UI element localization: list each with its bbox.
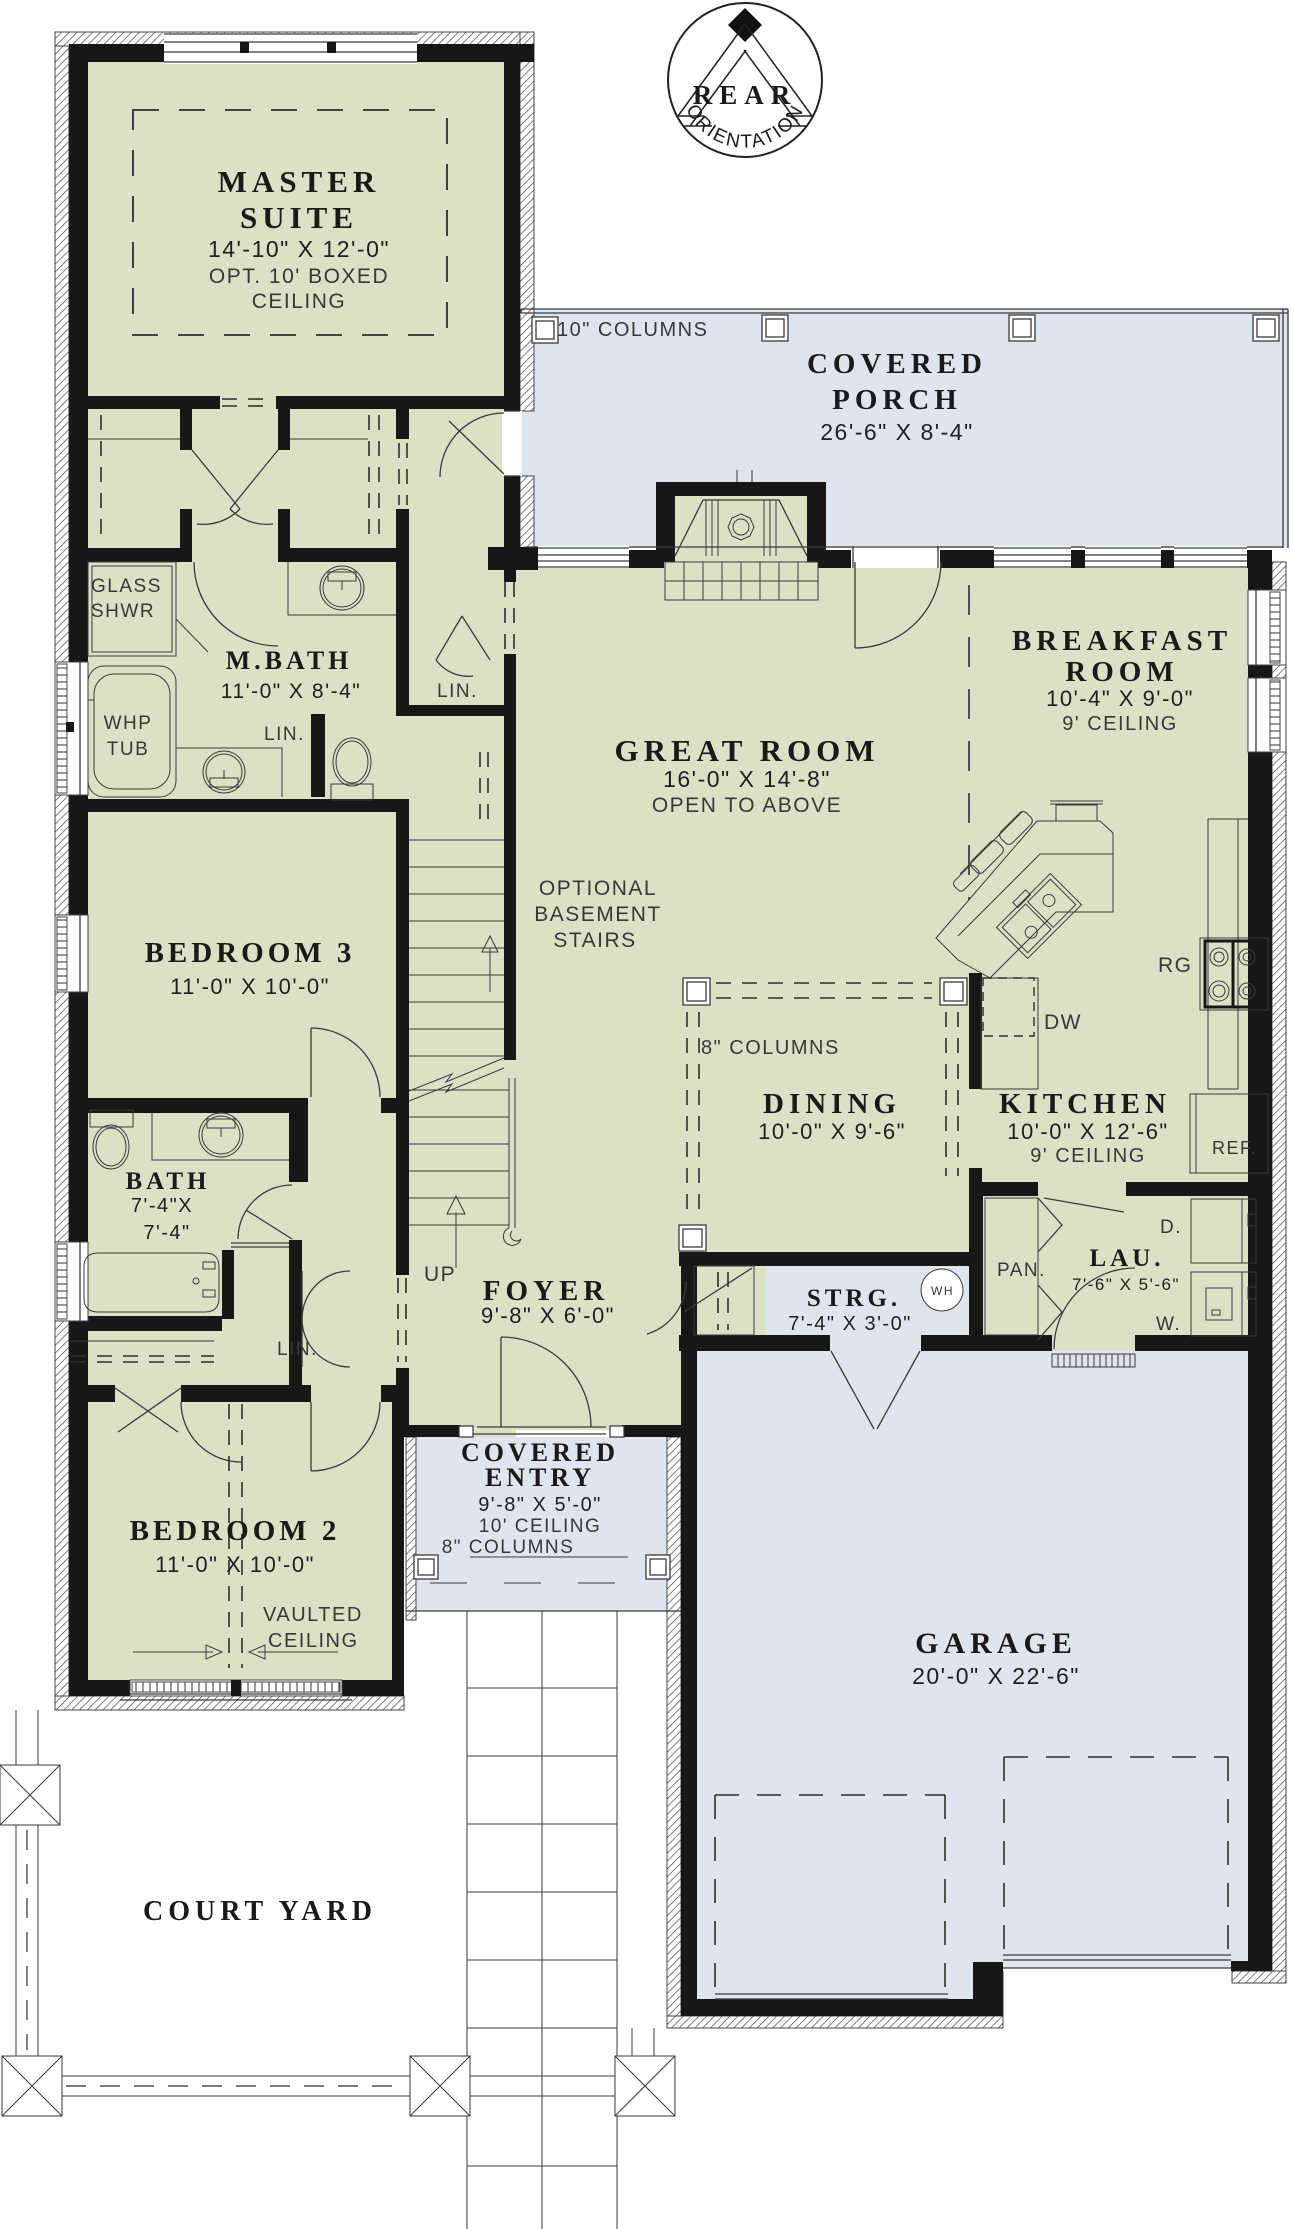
svg-text:LIN.: LIN. (437, 681, 478, 702)
svg-text:DINING: DINING (763, 1088, 901, 1120)
svg-text:11'-0" X 8'-4": 11'-0" X 8'-4" (221, 680, 361, 703)
svg-text:10' CEILING: 10' CEILING (479, 1516, 602, 1537)
svg-text:9' CEILING: 9' CEILING (1030, 1145, 1146, 1167)
svg-text:OPTIONAL: OPTIONAL (539, 877, 657, 900)
svg-text:KITCHEN: KITCHEN (999, 1088, 1171, 1120)
svg-text:W.: W. (1156, 1314, 1181, 1335)
svg-text:WH: WH (931, 1284, 954, 1298)
svg-text:9' CEILING: 9' CEILING (1062, 713, 1178, 735)
svg-text:16'-0" X 14'-8": 16'-0" X 14'-8" (663, 766, 831, 792)
svg-text:ENTRY: ENTRY (485, 1463, 595, 1492)
svg-text:LAU.: LAU. (1089, 1245, 1164, 1272)
svg-text:ROOM: ROOM (1065, 656, 1178, 688)
svg-text:STAIRS: STAIRS (553, 929, 636, 952)
svg-text:7'-6" X 5'-6": 7'-6" X 5'-6" (1072, 1275, 1180, 1294)
svg-text:PAN.: PAN. (997, 1260, 1046, 1281)
svg-text:9'-8" X 6'-0": 9'-8" X 6'-0" (481, 1303, 615, 1328)
svg-text:10'-0" X 9'-6": 10'-0" X 9'-6" (758, 1119, 906, 1144)
svg-text:20'-0" X 22'-6": 20'-0" X 22'-6" (912, 1663, 1080, 1689)
svg-text:11'-0" X 10'-0": 11'-0" X 10'-0" (170, 974, 330, 999)
svg-text:7'-4" X 3'-0": 7'-4" X 3'-0" (788, 1313, 912, 1335)
svg-text:9'-8" X 5'-0": 9'-8" X 5'-0" (478, 1494, 602, 1516)
svg-text:CEILING: CEILING (268, 1630, 359, 1652)
svg-text:GREAT ROOM: GREAT ROOM (614, 733, 879, 768)
svg-text:DW: DW (1044, 1011, 1082, 1034)
svg-text:11'-0" X 10'-0": 11'-0" X 10'-0" (155, 1552, 315, 1577)
svg-text:BEDROOM 2: BEDROOM 2 (130, 1515, 341, 1547)
svg-text:TUB: TUB (107, 739, 150, 760)
svg-text:7'-4"X: 7'-4"X (131, 1195, 193, 1217)
svg-text:OPEN TO ABOVE: OPEN TO ABOVE (652, 794, 842, 817)
svg-text:STRG.: STRG. (807, 1285, 901, 1312)
svg-text:UP: UP (424, 1263, 456, 1286)
svg-text:10'-4" X 9'-0": 10'-4" X 9'-0" (1046, 686, 1194, 711)
svg-text:10" COLUMNS: 10" COLUMNS (557, 319, 708, 341)
svg-text:BEDROOM 3: BEDROOM 3 (145, 937, 356, 969)
svg-text:PORCH: PORCH (832, 384, 962, 416)
svg-text:BREAKFAST: BREAKFAST (1012, 625, 1232, 657)
svg-text:7'-4": 7'-4" (143, 1222, 190, 1244)
svg-text:CEILING: CEILING (252, 290, 347, 313)
svg-text:VAULTED: VAULTED (263, 1604, 363, 1626)
svg-text:WHP: WHP (104, 713, 153, 734)
svg-text:BASEMENT: BASEMENT (534, 903, 662, 926)
svg-text:14'-10" X 12'-0": 14'-10" X 12'-0" (208, 236, 390, 262)
svg-text:SUITE: SUITE (240, 200, 358, 235)
svg-text:8" COLUMNS: 8" COLUMNS (701, 1037, 840, 1059)
svg-text:COURT YARD: COURT YARD (143, 1896, 377, 1927)
svg-text:LIN.: LIN. (277, 1339, 318, 1360)
svg-text:RG: RG (1158, 954, 1193, 977)
svg-text:REAR: REAR (693, 80, 798, 110)
svg-text:OPT. 10' BOXED: OPT. 10' BOXED (209, 265, 389, 288)
svg-text:LIN.: LIN. (264, 724, 305, 745)
svg-text:MASTER: MASTER (218, 164, 381, 199)
svg-text:REF.: REF. (1212, 1138, 1257, 1158)
svg-text:GLASS: GLASS (91, 576, 162, 597)
svg-text:GARAGE: GARAGE (915, 1627, 1077, 1660)
svg-text:M.BATH: M.BATH (226, 646, 353, 675)
svg-text:BATH: BATH (126, 1168, 211, 1195)
svg-text:10'-0" X 12'-6": 10'-0" X 12'-6" (1007, 1119, 1168, 1144)
svg-text:SHWR: SHWR (91, 601, 155, 622)
svg-text:D.: D. (1160, 1217, 1182, 1238)
svg-text:26'-6" X 8'-4": 26'-6" X 8'-4" (820, 419, 974, 445)
svg-text:8" COLUMNS: 8" COLUMNS (442, 1537, 575, 1558)
svg-text:COVERED: COVERED (807, 348, 987, 380)
